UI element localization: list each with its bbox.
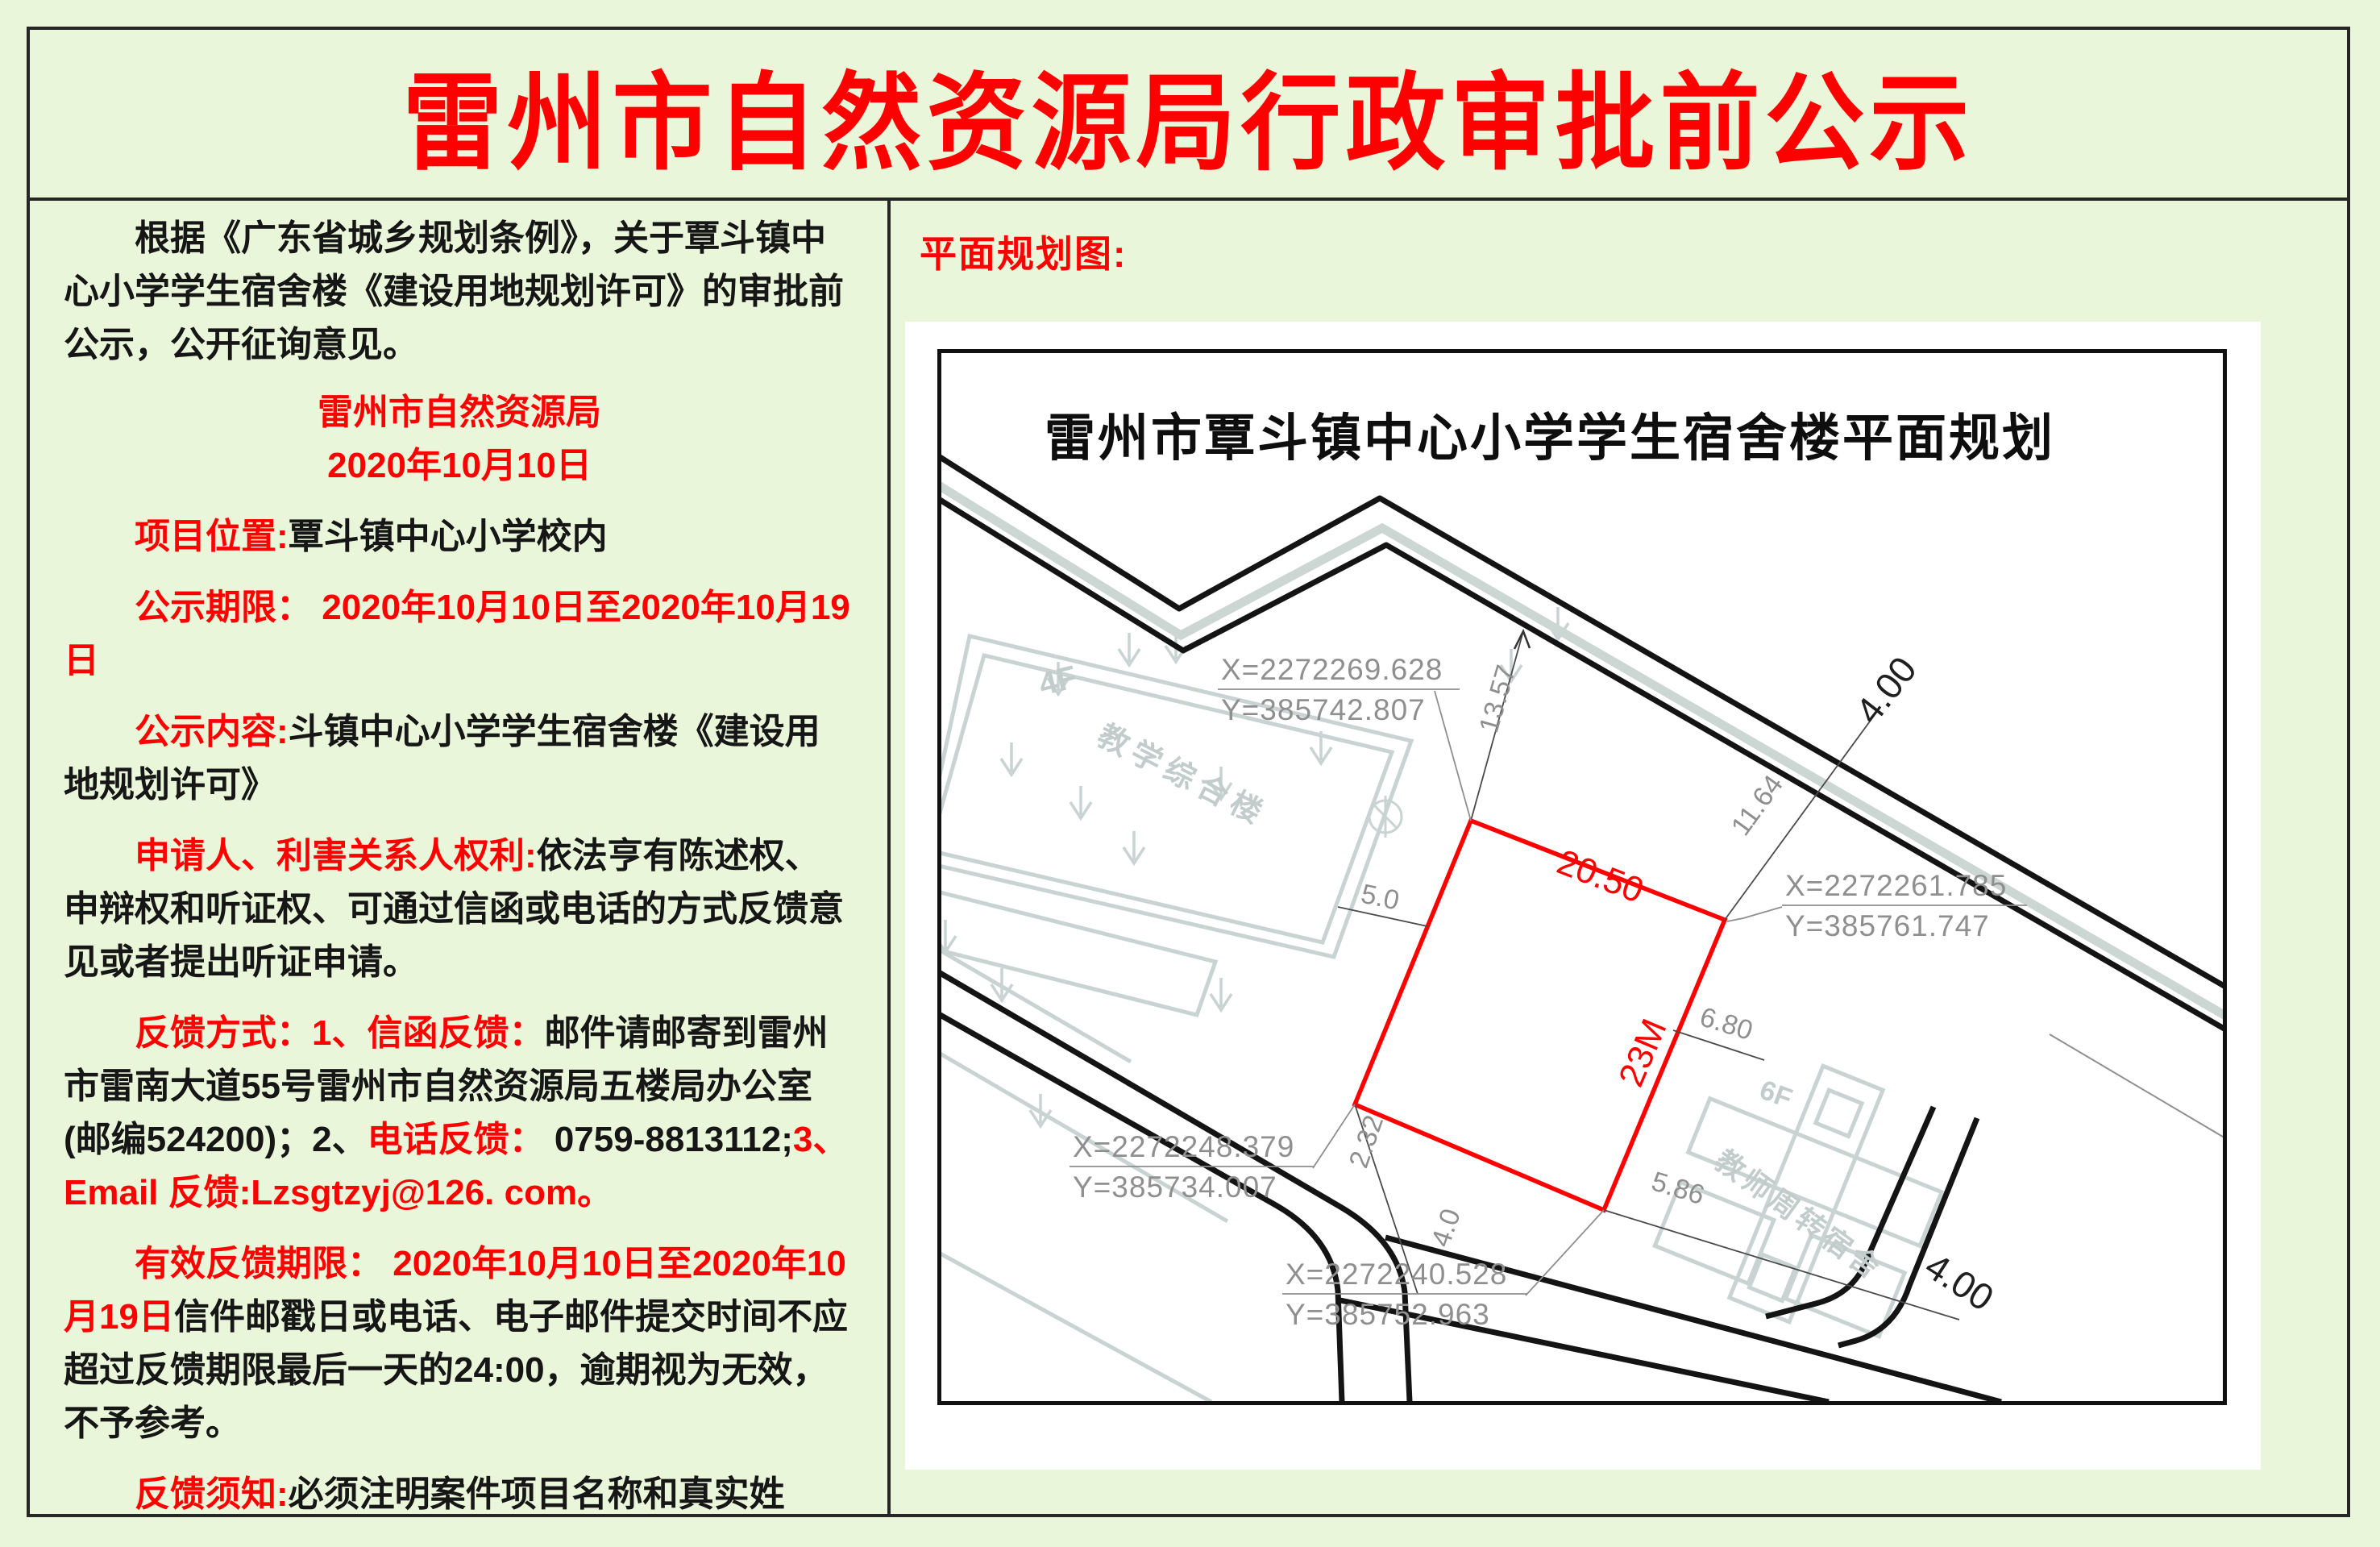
notice-org: 雷州市自然资源局 xyxy=(64,386,855,439)
notice-period: 公示期限： 2020年10月10日至2020年10月19日 xyxy=(64,581,855,688)
valid-period-value: 信件邮戳日或电话、电子邮件提交时间不应超过反馈期限最后一天的24:00，逾期视为… xyxy=(64,1297,848,1443)
notice-text-panel: 根据《广东省城乡规划条例》，关于覃斗镇中心小学学生宿舍楼《建设用地规划许可》的审… xyxy=(30,201,891,1514)
plan-label: 平面规划图: xyxy=(920,225,1127,278)
svg-text:X=2272269.628: X=2272269.628 xyxy=(1221,653,1443,686)
svg-text:X=2272248.379: X=2272248.379 xyxy=(1073,1130,1294,1163)
notice-location: 项目位置:覃斗镇中心小学校内 xyxy=(64,510,855,563)
content-columns: 根据《广东省城乡规划条例》，关于覃斗镇中心小学学生宿舍楼《建设用地规划许可》的审… xyxy=(30,201,2347,1514)
location-value: 覃斗镇中心小学校内 xyxy=(289,517,608,556)
svg-text:Y=385734.007: Y=385734.007 xyxy=(1073,1171,1277,1204)
notice-feedback: 反馈方式：1、信函反馈：邮件请邮寄到雷州市雷南大道55号雷州市自然资源局五楼局办… xyxy=(64,1007,855,1220)
svg-text:Y=385742.807: Y=385742.807 xyxy=(1221,693,1426,726)
notice-valid-period: 有效反馈期限： 2020年10月10日至2020年10月19日信件邮戳日或电话、… xyxy=(64,1237,855,1450)
svg-text:Y=385761.747: Y=385761.747 xyxy=(1785,909,1990,942)
svg-text:X=2272261.785: X=2272261.785 xyxy=(1785,869,2007,902)
svg-text:X=2272240.528: X=2272240.528 xyxy=(1286,1258,1507,1291)
title-bar: 雷州市自然资源局行政审批前公示 xyxy=(30,30,2347,201)
notice-note: 反馈须知:必须注明案件项目名称和真实姓名，联系电话、联系地址、邮政编码，如反馈信… xyxy=(64,1468,855,1514)
feedback-phone-value: 0759-8813112; xyxy=(545,1120,793,1159)
plan-title: 雷州市覃斗镇中心小学学生宿舍楼平面规划 xyxy=(1045,410,2055,467)
notice-paragraph: 根据《广东省城乡规划条例》，关于覃斗镇中心小学学生宿舍楼《建设用地规划许可》的审… xyxy=(64,212,855,372)
notice-intro: 根据《广东省城乡规划条例》，关于覃斗镇中心小学学生宿舍楼《建设用地规划许可》的审… xyxy=(64,218,844,364)
rights-label: 申请人、利害关系人权利: xyxy=(135,836,537,875)
notice-content: 公示内容:斗镇中心小学学生宿舍楼《建设用地规划许可》 xyxy=(64,705,855,812)
drawing-board: 雷州市覃斗镇中心小学学生宿舍楼平面规划 xyxy=(905,322,2261,1470)
feedback-mail-label: 反馈方式：1、信函反馈： xyxy=(135,1013,544,1053)
location-label: 项目位置: xyxy=(135,517,289,556)
svg-text:Y=385752.963: Y=385752.963 xyxy=(1286,1298,1490,1331)
content-label: 公示内容: xyxy=(135,712,289,751)
org-name: 雷州市自然资源局 xyxy=(318,393,601,432)
feedback-phone-label: 电话反馈： xyxy=(368,1120,545,1159)
note-label: 反馈须知: xyxy=(135,1474,289,1514)
page-title: 雷州市自然资源局行政审批前公示 xyxy=(402,37,1974,191)
notice-rights: 申请人、利害关系人权利:依法亨有陈述权、申辩权和听证权、可通过信函或电话的方式反… xyxy=(64,830,855,989)
notice-date: 2020年10月10日 xyxy=(64,439,855,493)
plan-panel: 平面规划图: 雷州市覃斗镇中心小学学生宿舍楼平面规划 xyxy=(891,201,2347,1514)
notice-page: 雷州市自然资源局行政审批前公示 根据《广东省城乡规划条例》，关于覃斗镇中心小学学… xyxy=(27,27,2350,1517)
org-date: 2020年10月10日 xyxy=(327,446,592,485)
period-value: 公示期限： 2020年10月10日至2020年10月19日 xyxy=(64,588,850,680)
site-plan-svg: 雷州市覃斗镇中心小学学生宿舍楼平面规划 xyxy=(937,349,2227,1405)
